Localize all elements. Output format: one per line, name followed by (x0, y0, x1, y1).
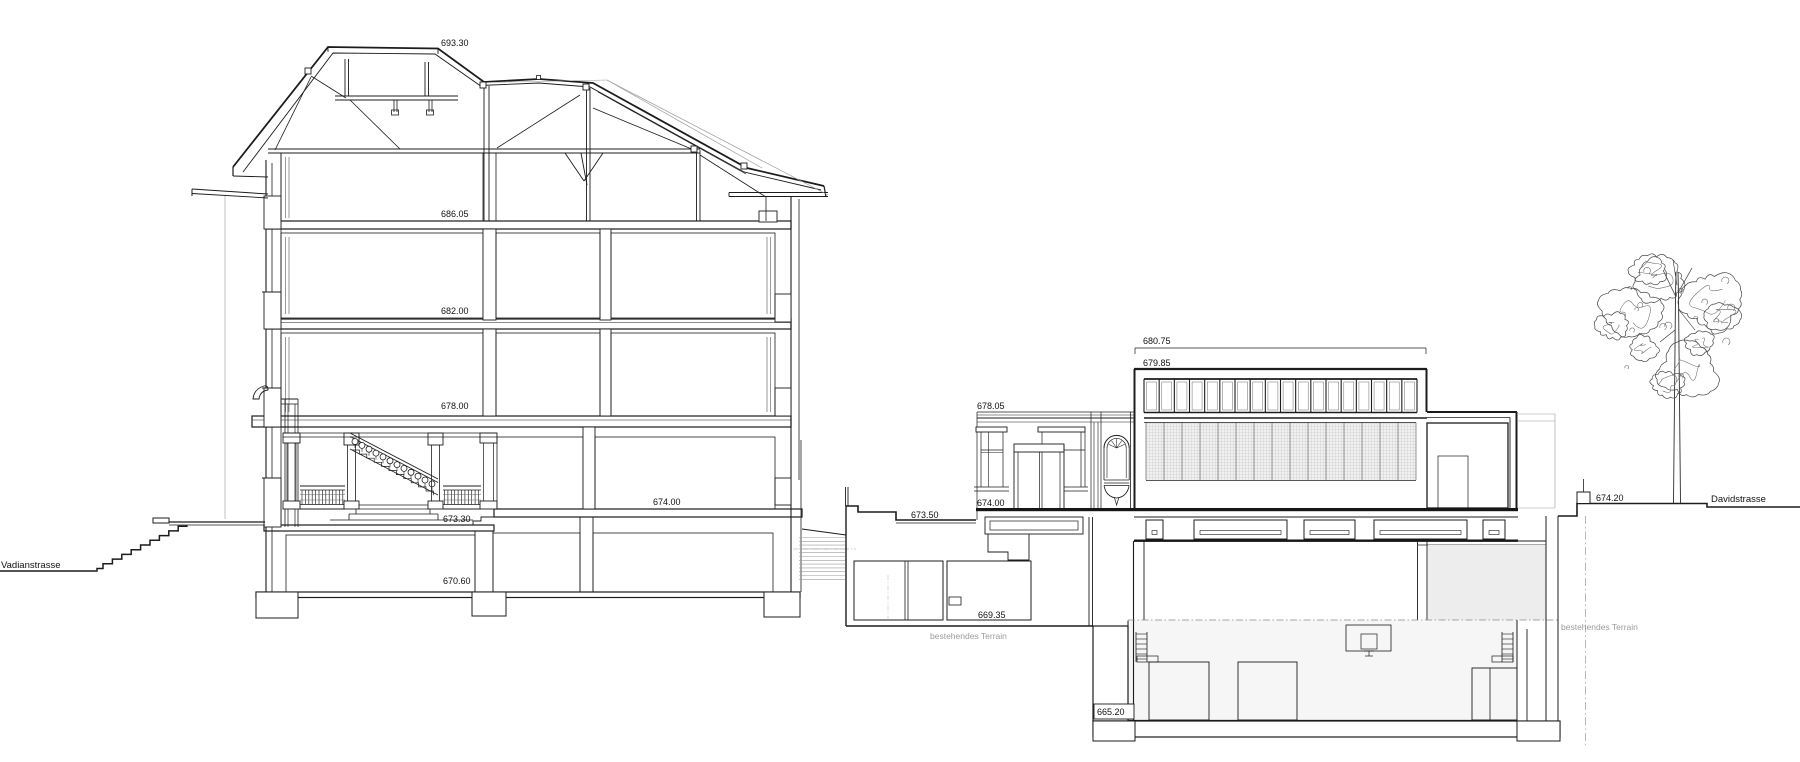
svg-text:679.85: 679.85 (1143, 358, 1171, 368)
svg-text:Vadianstrasse: Vadianstrasse (1, 560, 61, 571)
svg-text:bestehendes Terrain: bestehendes Terrain (1561, 622, 1638, 632)
svg-text:682.00: 682.00 (441, 306, 469, 316)
svg-text:674.00: 674.00 (653, 497, 681, 507)
svg-text:673.30: 673.30 (443, 514, 471, 524)
svg-text:Davidstrasse: Davidstrasse (1711, 494, 1766, 505)
svg-text:bestehendes Terrain: bestehendes Terrain (930, 631, 1007, 641)
svg-text:674.00: 674.00 (977, 498, 1005, 508)
svg-text:680.75: 680.75 (1143, 336, 1171, 346)
svg-text:669.35: 669.35 (978, 610, 1006, 620)
svg-text:678.05: 678.05 (977, 401, 1005, 411)
svg-text:678.00: 678.00 (441, 401, 469, 411)
svg-text:693.30: 693.30 (441, 38, 469, 48)
svg-text:665.20: 665.20 (1097, 707, 1125, 717)
svg-text:673.50: 673.50 (911, 510, 939, 520)
svg-text:674.20: 674.20 (1596, 493, 1624, 503)
svg-text:670.60: 670.60 (443, 576, 471, 586)
svg-text:686.05: 686.05 (441, 209, 469, 219)
